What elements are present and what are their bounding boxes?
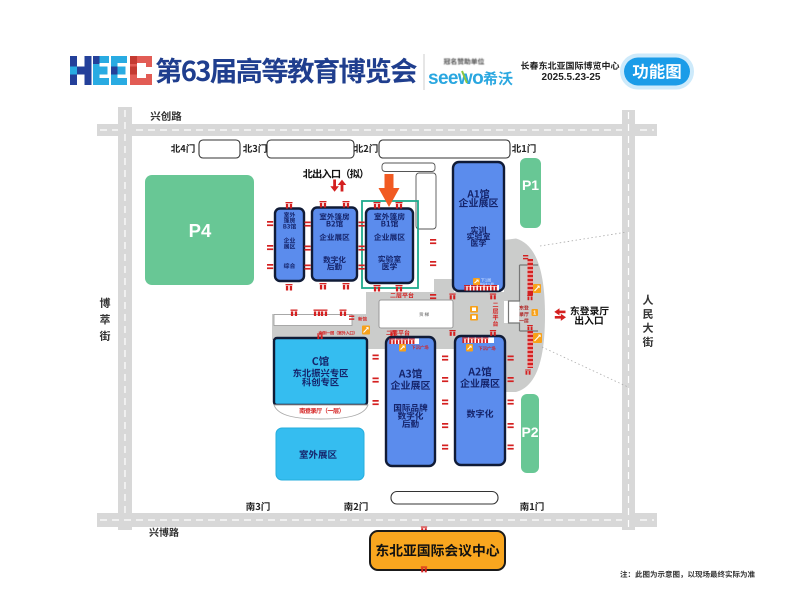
svg-text:seewo: seewo (428, 68, 483, 89)
svg-text:P2: P2 (521, 424, 538, 440)
svg-text:1: 1 (533, 311, 536, 317)
svg-text:2025.5.23-25: 2025.5.23-25 (542, 72, 601, 83)
svg-text:P1: P1 (522, 177, 539, 193)
svg-text:P4: P4 (189, 220, 212, 241)
